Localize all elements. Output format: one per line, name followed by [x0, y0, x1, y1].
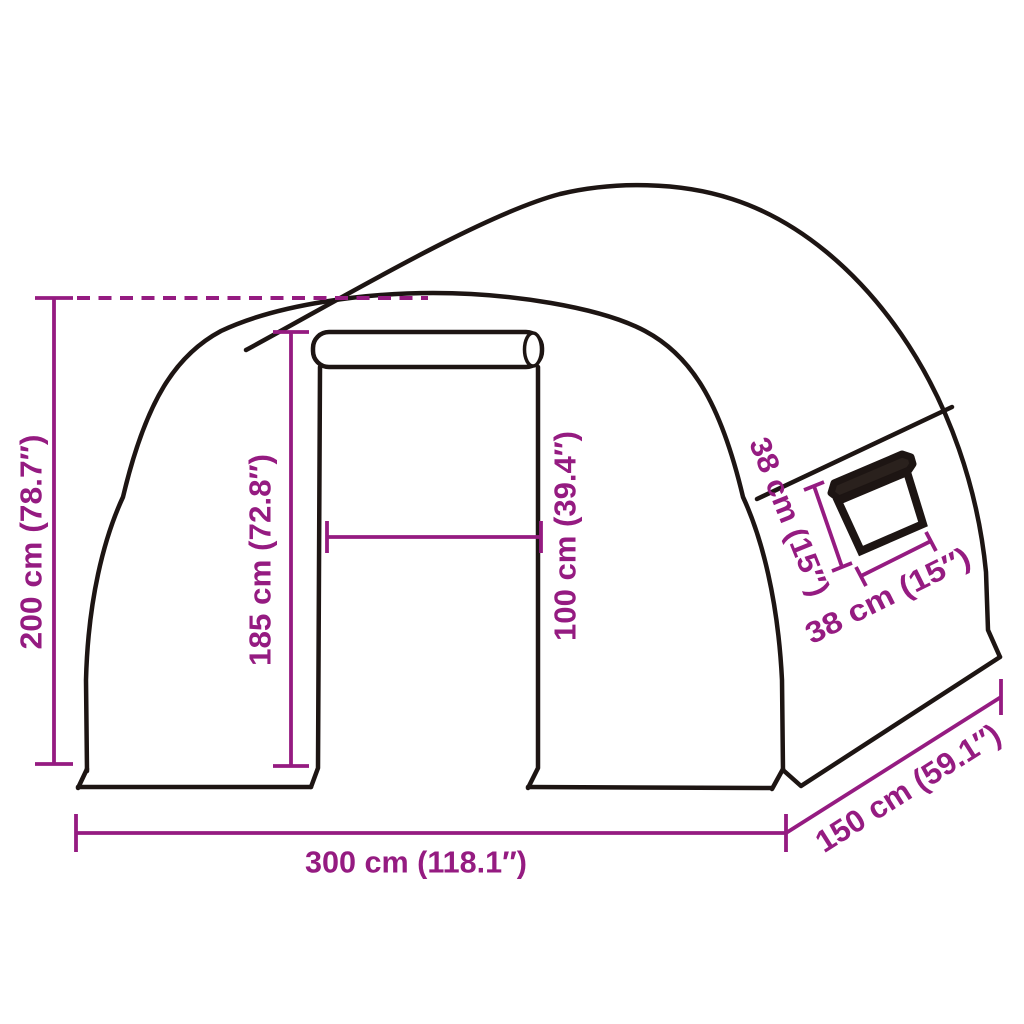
dimension-diagram: 200 cm (78.7″) 185 cm (72.8″) 100 cm (39… [0, 0, 1024, 1024]
total-height-label: 200 cm (78.7″) [14, 435, 49, 650]
dimension-lines [35, 298, 1001, 852]
door-right-jamb [528, 367, 538, 788]
door-left-jamb [311, 367, 320, 787]
total-width-label: 300 cm (118.1″) [305, 845, 527, 880]
greenhouse-diagram-canvas: 200 cm (78.7″) 185 cm (72.8″) 100 cm (39… [0, 0, 1024, 1024]
door-roll [313, 332, 542, 367]
door-roll-endcap [525, 333, 542, 366]
window-width-label: 38 cm (15″) [800, 541, 976, 651]
total-depth-label: 150 cm (59.1″) [809, 717, 1007, 860]
front-right-foot [772, 769, 783, 789]
door-height-label: 185 cm (72.8″) [243, 454, 278, 666]
greenhouse-outline [78, 185, 1000, 789]
front-bottom-right-edge [528, 787, 772, 788]
window-height-label: 38 cm (15″) [742, 433, 836, 601]
door-width-label: 100 cm (39.4″) [548, 431, 583, 641]
